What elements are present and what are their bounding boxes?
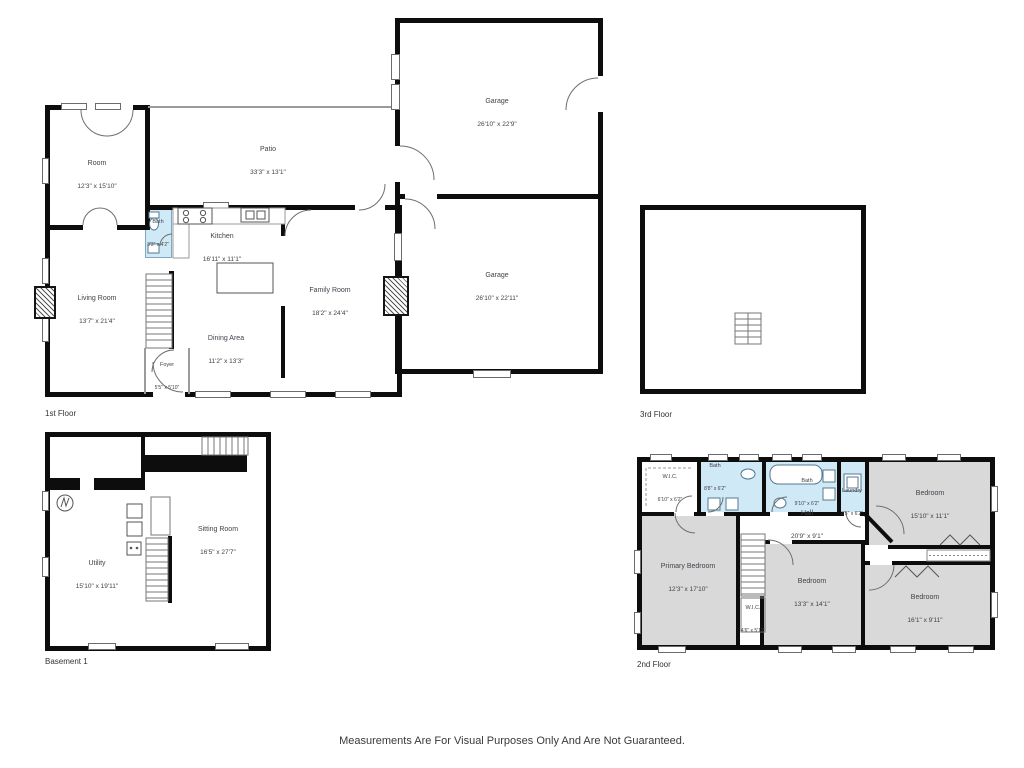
wall (697, 462, 701, 512)
door-gap (706, 512, 724, 516)
wall (169, 271, 174, 349)
door-gap (598, 76, 603, 112)
wall (762, 462, 766, 512)
window-marker (394, 233, 402, 261)
patio-edge-line (148, 106, 398, 108)
window-marker (203, 202, 229, 210)
room-label: Utility 15'10" x 19'11" (76, 549, 118, 595)
room-name: Bedroom (916, 490, 944, 497)
floorplan-sheet: Room 12'3" x 15'10" Patio 33'3" x 13'1" … (0, 0, 1024, 768)
wall (888, 545, 990, 549)
window-marker (61, 103, 87, 110)
window-marker (802, 454, 822, 461)
window-marker (634, 550, 641, 574)
stairs-icon (202, 437, 248, 455)
window-marker (88, 643, 116, 650)
room-label: Bedroom 16'1" x 9'11" (907, 583, 942, 629)
wall (861, 540, 865, 645)
water-heater-icon (57, 495, 73, 511)
room-label: Living Room 13'7" x 21'4" (78, 284, 117, 330)
room-name: Utility (88, 560, 105, 567)
room-label: Bedroom 13'3" x 14'1" (794, 567, 830, 613)
room-dims: 15'10" x 11'1" (911, 513, 950, 520)
room-label: Dining Area 11'2" x 13'3" (208, 324, 244, 370)
room-name: Bedroom (798, 578, 826, 585)
room-dims: 5'5" x 5'10" (155, 385, 180, 391)
window-marker (739, 454, 759, 461)
room-name: Garage (485, 272, 508, 279)
window-marker (42, 318, 49, 342)
window-marker (195, 391, 231, 398)
door-gap (355, 205, 385, 210)
room-dims: 13'7" x 21'4" (79, 318, 115, 325)
door-gap (770, 512, 788, 516)
room-label: Garage 26'10" x 22'9" (477, 87, 516, 133)
door-gap (405, 194, 437, 201)
room-label: Room 12'3" x 15'10" (77, 149, 116, 195)
door-gap (83, 225, 117, 230)
room-name: Bath (801, 478, 812, 484)
room-name: Laundry (842, 488, 862, 494)
room-name: W.I.C. (746, 605, 761, 611)
room-label: Family Room 18'2" x 24'4" (309, 276, 350, 322)
room-dims: 16'11" x 11'1" (203, 256, 241, 263)
room-dims: 16'5" x 27'7" (200, 549, 236, 556)
room-name: Foyer (160, 362, 174, 368)
door-gap (674, 512, 694, 516)
wall (736, 512, 740, 645)
window-marker (890, 646, 916, 653)
room-name: Patio (260, 146, 276, 153)
window-marker (391, 54, 400, 80)
door-gap (395, 146, 400, 182)
room-label: Foyer 5'5" x 5'10" (155, 350, 180, 396)
window-marker (832, 646, 856, 653)
window-marker (335, 391, 371, 398)
stairs-icon (735, 313, 761, 344)
room-name: Dining Area (208, 335, 244, 342)
room-label: Hall 20'9" x 9'1" (791, 499, 823, 545)
window-marker (42, 557, 49, 577)
window-marker (650, 454, 672, 461)
room-dims: 13'3" x 14'1" (794, 601, 830, 608)
room-name: Kitchen (210, 233, 233, 240)
room-name: Living Room (78, 295, 117, 302)
room-dims: 16'1" x 9'11" (907, 617, 942, 624)
chimney-icon (34, 286, 56, 319)
room-dims: 12'3" x 17'10" (668, 586, 707, 593)
room-name: Family Room (309, 287, 350, 294)
window-marker (778, 646, 802, 653)
room-label: Sitting Room 16'5" x 27'7" (198, 515, 238, 561)
room-dims: 11'2" x 13'3" (208, 358, 243, 365)
wall (50, 478, 80, 490)
floor-label-basement: Basement 1 (45, 657, 88, 666)
wall (281, 210, 285, 236)
window-marker (772, 454, 792, 461)
room-name: Sitting Room (198, 526, 238, 533)
room-dims: 33'3" x 13'1" (250, 169, 286, 176)
room-dims: 20'9" x 9'1" (791, 533, 823, 540)
sink-icon (241, 208, 269, 222)
window-marker (391, 84, 400, 110)
window-marker (473, 370, 511, 378)
door-gap (870, 561, 892, 565)
wall (281, 306, 285, 378)
window-marker (95, 103, 121, 110)
disclaimer-text: Measurements Are For Visual Purposes Onl… (0, 735, 1024, 747)
window-marker (991, 592, 998, 618)
room-dims: 6'10" x 6'2" (658, 497, 683, 503)
room-name: Bath (709, 463, 720, 469)
window-marker (270, 391, 306, 398)
wall (94, 478, 145, 490)
wall (145, 455, 247, 472)
wall (168, 536, 172, 603)
window-marker (882, 454, 906, 461)
room-name: W.I.C. (663, 474, 678, 480)
room-name: Bath (152, 219, 163, 225)
window-marker (42, 158, 49, 184)
second-floor-plan: W.I.C. 6'10" x 6'2" Bath 8'8" x 6'2" Bat… (637, 457, 995, 650)
room-name: Hall (801, 510, 813, 517)
room-name: Room (88, 160, 107, 167)
room-dims: 18'2" x 24'4" (312, 310, 348, 317)
room-label: Patio 33'3" x 13'1" (250, 135, 286, 181)
wall (865, 462, 869, 545)
stairs-icon (146, 497, 170, 601)
foyer-wall (144, 348, 146, 394)
room-label: W.I.C. 4'6" x 5'11" (741, 593, 765, 639)
window-marker (42, 491, 49, 511)
room-name: Garage (485, 98, 508, 105)
third-floor-plan (640, 205, 866, 394)
basement-plan: Utility 15'10" x 19'11" Sitting Room 16'… (45, 432, 271, 651)
room-label: Garage 26'10" x 22'11" (476, 261, 518, 307)
room-label: Primary Bedroom 12'3" x 17'10" (661, 552, 715, 598)
window-marker (948, 646, 974, 653)
room-dims: 12'3" x 15'10" (77, 183, 116, 190)
window-marker (42, 258, 49, 284)
first-floor-plan: Room 12'3" x 15'10" Patio 33'3" x 13'1" … (45, 18, 603, 413)
room-label: Kitchen 16'11" x 11'1" (203, 222, 241, 268)
room-dims: 15'10" x 19'11" (76, 583, 118, 590)
room-label: Bedroom 15'10" x 11'1" (911, 479, 950, 525)
window-marker (215, 643, 249, 650)
room-label: Bath 3'3" x 4'2" (147, 207, 169, 253)
room-name: Bedroom (911, 594, 939, 601)
floor-label-first: 1st Floor (45, 409, 76, 418)
room-name: Primary Bedroom (661, 563, 715, 570)
door-gap (770, 540, 792, 544)
wall (45, 105, 50, 397)
floor-label-third: 3rd Floor (640, 410, 672, 419)
foyer-wall (188, 348, 190, 394)
window-marker (937, 454, 961, 461)
room-label: Bath 8'8" x 6'2" (704, 451, 726, 497)
room-dims: 26'10" x 22'11" (476, 295, 518, 302)
window-marker (634, 612, 641, 634)
room-dims: 4'6" x 5'11" (741, 628, 765, 634)
room-dims: 26'10" x 22'9" (477, 121, 516, 128)
third-floor-details (645, 210, 861, 389)
room-dims: 3'3" x 4'2" (147, 242, 169, 248)
window-marker (991, 486, 998, 512)
room-dims: 3'5" x 6'2" (841, 511, 863, 517)
room-dims: 8'8" x 6'2" (704, 486, 726, 492)
floor-label-second: 2nd Floor (637, 660, 671, 669)
chimney-icon (383, 276, 409, 316)
window-marker (658, 646, 686, 653)
washer-icon (127, 504, 142, 555)
room-label: W.I.C. 6'10" x 6'2" (658, 462, 683, 508)
room-label: Laundry 3'5" x 6'2" (841, 476, 863, 522)
